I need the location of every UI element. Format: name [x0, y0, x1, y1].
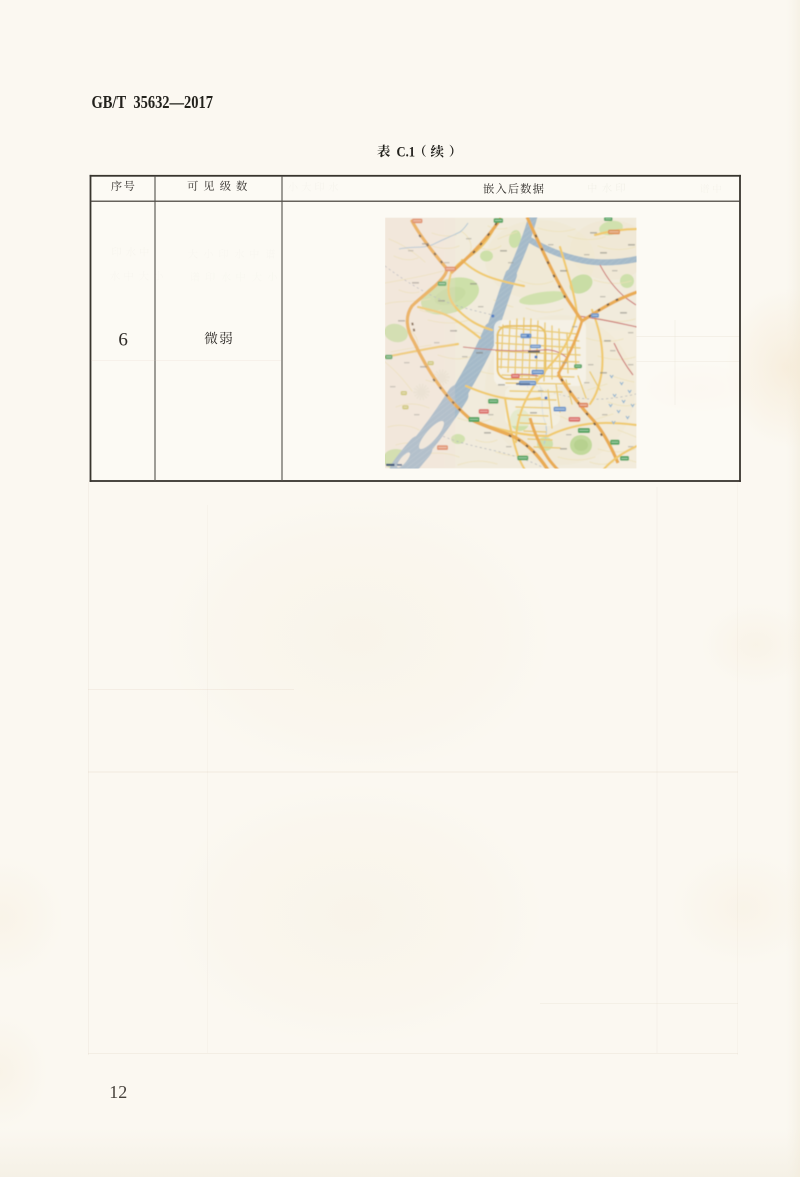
svg-text:6: 6 [118, 329, 128, 350]
svg-text:C.1: C.1 [397, 145, 416, 161]
svg-text:12: 12 [109, 1082, 127, 1102]
svg-text:GB/T 35632—2017: GB/T 35632—2017 [92, 92, 214, 112]
